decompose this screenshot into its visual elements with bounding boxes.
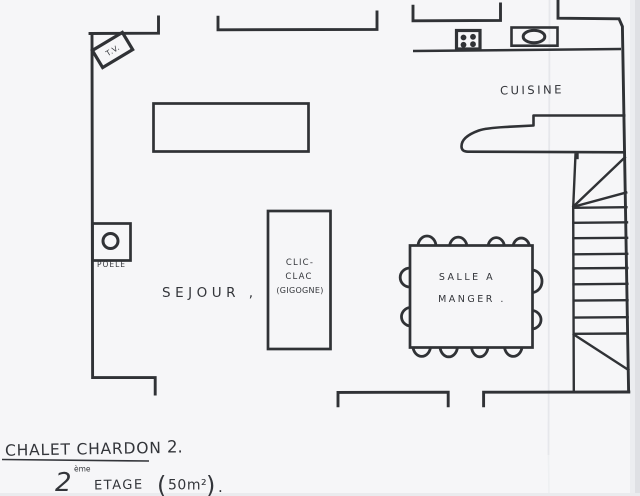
poele-label: POELE	[97, 260, 126, 269]
paper-crease	[549, 0, 550, 455]
scanned-floor-plan-page: CUISINE T.V. POELE SEJOUR , CL	[0, 0, 640, 496]
title-name: CHALET CHARDON	[5, 439, 162, 460]
paper-artifacts	[0, 0, 640, 496]
paper-background	[0, 0, 640, 496]
clic-clac-label-line1: CLIC-	[286, 258, 314, 268]
area-period: .	[218, 478, 223, 496]
paper-crease-lower	[549, 455, 550, 496]
floor-digit: 2	[55, 468, 72, 496]
floor-word: ETAGE	[94, 478, 144, 494]
salle-a-manger-label-line2: MANGER .	[438, 294, 506, 305]
stove-burner	[461, 35, 467, 41]
floor-ordinal: ème	[74, 465, 91, 474]
stair-tread	[574, 222, 628, 223]
clic-clac-label-line2: CLAC	[285, 272, 312, 282]
stair-tread	[573, 207, 626, 208]
sejour-label: SEJOUR ,	[162, 285, 258, 301]
area-value: 50m²	[168, 478, 207, 494]
clic-clac-label-line3: (GIGOGNE)	[276, 286, 323, 295]
stove-burner	[470, 41, 476, 47]
stove-burner	[461, 42, 467, 48]
area-paren-open: (	[157, 472, 166, 496]
floor-plan-svg: CUISINE T.V. POELE SEJOUR , CL	[0, 0, 640, 496]
area-paren-close: )	[206, 472, 215, 496]
stair-tread	[574, 254, 628, 255]
salle-a-manger-label-line1: SALLE A	[439, 272, 495, 283]
cuisine-label: CUISINE	[500, 82, 564, 97]
paper-edge-right	[635, 0, 640, 496]
title-number: 2.	[167, 438, 183, 457]
stove-burner	[470, 34, 476, 40]
title-separator: .	[156, 441, 160, 457]
stair-tread	[574, 284, 628, 285]
paper-edge-right-light	[630, 0, 635, 496]
